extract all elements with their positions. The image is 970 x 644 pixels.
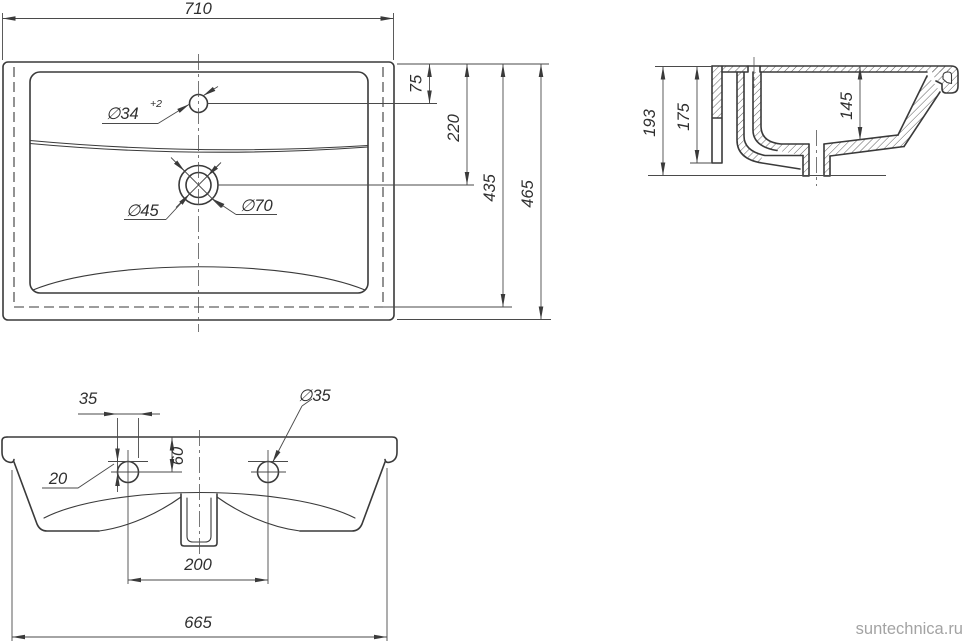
fv-hole-dia-label: ∅35	[298, 387, 332, 405]
fv-hole-width-label: 35	[79, 390, 98, 408]
tv-faucet-hole-label: ∅34	[106, 105, 139, 123]
fv-drain-boss-inner	[187, 498, 211, 542]
tv-faucet-offset-label: 75	[408, 74, 426, 93]
tv-faucet-hole-tolerance: +2	[150, 98, 162, 110]
tv-drain-offset-label: 220	[445, 113, 463, 142]
fv-width-label: 665	[184, 614, 212, 632]
fv-ledge-offset-label: 20	[48, 470, 68, 488]
drawing-sheet: ∅45 ∅70 ∅34 +2 710 75 220 435 465	[0, 0, 970, 644]
fv-right-leg	[300, 462, 385, 531]
tv-width-label: 710	[184, 0, 212, 18]
fv-hole-top-offset-label: 60	[169, 446, 187, 465]
tv-inner-depth-label: 435	[481, 173, 499, 201]
tv-basin-rim	[30, 72, 368, 293]
technical-drawing-canvas: ∅45 ∅70 ∅34 +2 710 75 220 435 465	[0, 0, 970, 644]
fv-top-left-outline	[2, 437, 14, 462]
watermark: suntechnica.ru	[856, 620, 963, 638]
sv-bowl-depth-label: 145	[838, 91, 856, 119]
tv-basin-bottom-arch	[33, 267, 365, 290]
fv-underside-fillet-right	[217, 497, 300, 531]
fv-top-right-outline	[7, 437, 397, 462]
fv-underside-fillet-left	[99, 497, 181, 531]
top-view: ∅45 ∅70 ∅34 +2 710 75 220 435 465	[3, 0, 552, 332]
tv-drain-outer-label: ∅70	[240, 197, 274, 215]
tv-basin-front-curve	[30, 141, 368, 150]
section-view: 193 175 145	[641, 57, 958, 186]
sv-bowl-wall-inner	[761, 72, 809, 144]
sv-back-height-label: 175	[675, 102, 693, 130]
tv-drain-inner-label: ∅45	[126, 202, 160, 220]
fv-hole-spacing-label: 200	[183, 556, 212, 574]
sv-height-label: 193	[641, 108, 659, 136]
front-view: 35 20 60 ∅35 200 665	[2, 387, 397, 641]
fv-drain-boss-outer	[181, 494, 217, 546]
tv-depth-label: 465	[519, 179, 537, 207]
